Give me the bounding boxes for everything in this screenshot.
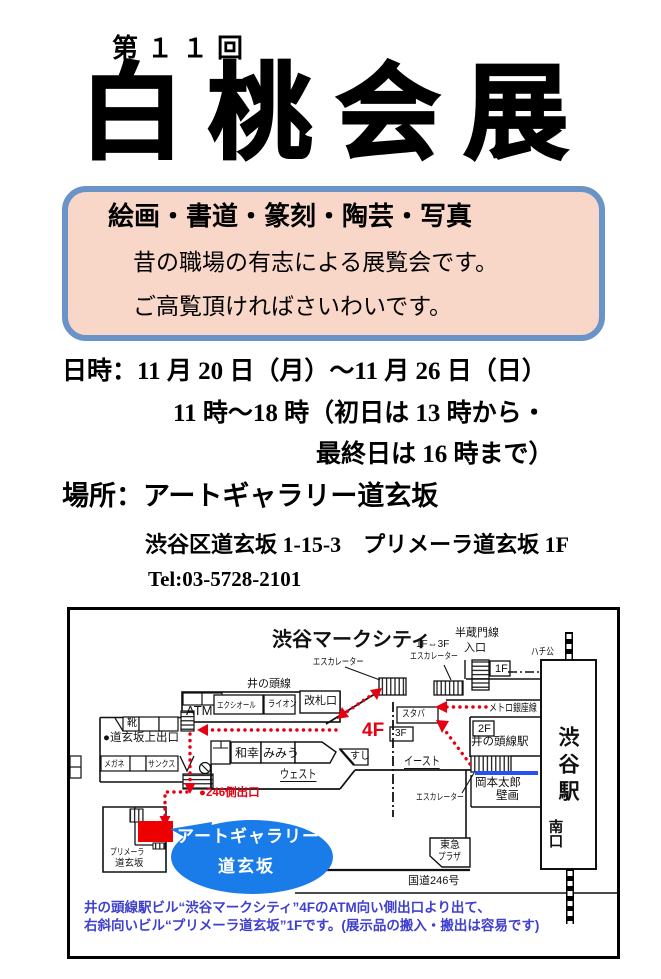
label-megane: メガネ [104, 760, 125, 769]
intro-line2: ご高覧頂ければさいわいです。 [133, 294, 452, 320]
map-note-line1: 井の頭線駅ビル“渋谷マークシティ”4FのATM向い側出口より出て、 [84, 901, 491, 915]
label-lion: ライオン [268, 700, 297, 710]
label-east: イースト [404, 755, 440, 769]
label-1f-3f: 1F⇔3F [416, 640, 449, 650]
label-west: ウェスト [280, 768, 316, 782]
label-metro-ginza-line: メトロ銀座線 [489, 703, 537, 714]
label-excelsior: エクシオール [217, 701, 256, 710]
label-hachiko: ハチ公 [531, 648, 554, 658]
label-inokashira-station: 井の頭線駅 [471, 737, 529, 749]
label-entrance: 入口 [464, 643, 486, 654]
label-mural: 壁画 [496, 791, 519, 803]
venue-line2: 渋谷区道玄坂 1-15-3 プリメーラ道玄坂 1F [145, 532, 569, 557]
label-3f: 3F [395, 729, 407, 739]
bubble-gallery-line1: アートギャラリー [177, 828, 320, 845]
label-route-246: 国道246号 [408, 876, 459, 887]
map-note-line2: 右斜向いビル“プリメーラ道玄坂”1Fです。(展示品の搬入・搬出は容易です) [84, 919, 539, 933]
label-ticket-gate: 改札口 [304, 696, 337, 707]
intro-categories: 絵画・書道・篆刻・陶芸・写真 [108, 202, 472, 232]
schedule-line3: 最終日は 16 時まで） [316, 441, 554, 470]
label-shibuya-station: 渋谷駅 [557, 726, 578, 807]
bubble-gallery-line2: 道玄坂 [218, 858, 275, 875]
gallery-marker [138, 821, 173, 842]
label-primera-2: 道玄坂 [115, 859, 144, 869]
label-dogenzaka-ue-exit: ●道玄坂上出口 [103, 733, 179, 745]
label-starbucks: スタバ [402, 710, 425, 720]
label-inokashira-line: 井の頭線 [247, 679, 291, 690]
label-wako: 和幸 [235, 747, 259, 759]
label-escalator-3: エスカレーター [416, 793, 464, 802]
poster-title: 白桃会展 [80, 62, 592, 166]
label-2f: 2F [478, 724, 491, 735]
label-escalator-2: エスカレーター [410, 652, 458, 661]
schedule-line2: 11 時～18 時（初日は 13 時から・ [173, 400, 547, 429]
label-1f: 1F [495, 664, 508, 675]
label-mark-city: 渋谷マークシティ [272, 630, 431, 650]
label-tokyu: 東急 [440, 841, 460, 851]
label-sunkus: サンクス [148, 760, 175, 769]
label-mimiu: みみう [263, 747, 299, 759]
intro-line1: 昔の職場の有志による展覧会です。 [133, 250, 498, 276]
label-246-side-exit: ●246側出口 [199, 788, 260, 800]
label-shoes: 靴 [127, 719, 137, 729]
label-hanzomon-line: 半蔵門線 [455, 628, 499, 639]
label-sushi: すし [350, 752, 370, 762]
venue-tel: Tel:03-5728-2101 [148, 567, 301, 591]
schedule-line1: 日時：11 月 20 日（月）～11 月 26 日（日） [62, 358, 547, 387]
label-atm: ATM [186, 704, 212, 717]
venue-line1: 場所：アートギャラリー道玄坂 [62, 481, 438, 512]
access-map: 渋谷マークシティ エスカレーター 井の頭線 ATM エクシオール ライオン 改札… [67, 607, 620, 959]
label-4f: 4F [362, 721, 384, 740]
label-south-exit: 南口 [547, 819, 562, 848]
label-escalator-1: エスカレーター [313, 658, 364, 668]
label-primera-1: プリメーラ [110, 848, 144, 857]
label-plaza: プラザ [438, 853, 461, 863]
label-okamoto-taro: 岡本太郎 [475, 778, 521, 790]
poster-page: 第１１回 白桃会展 絵画・書道・篆刻・陶芸・写真 昔の職場の有志による展覧会です… [0, 0, 661, 979]
